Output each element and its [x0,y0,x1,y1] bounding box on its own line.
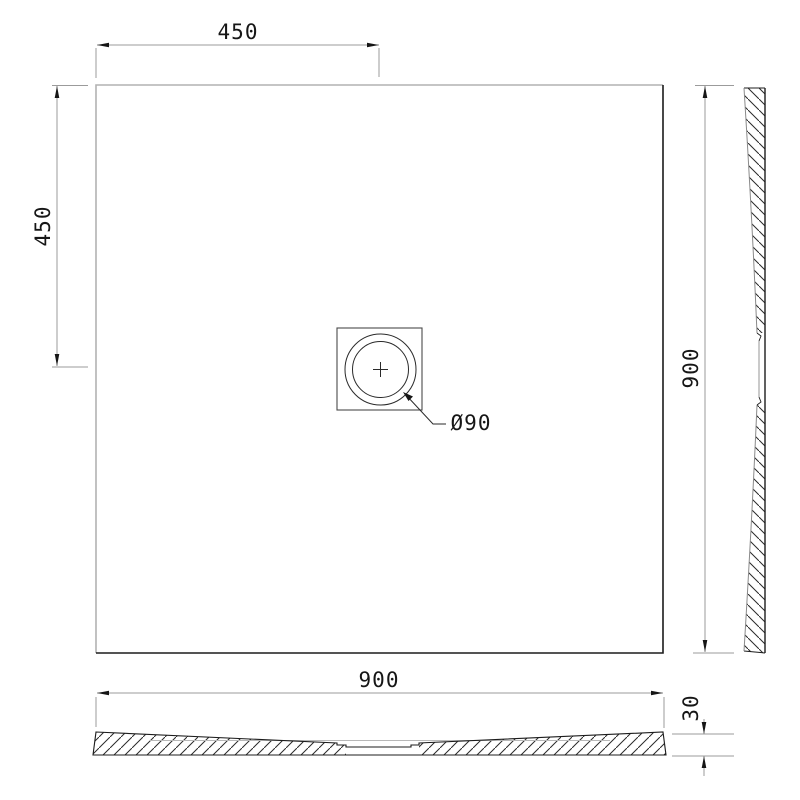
dim-bottom-900 [96,691,664,728]
dim-label-left-450: 450 [31,206,55,247]
arrow-down-icon [703,640,708,652]
technical-drawing-canvas: maxaro® [0,0,800,800]
bottom-section-view [93,732,666,755]
plan-view [96,85,663,653]
side-section-hatch-upper [744,88,765,333]
dim-label-right-900: 900 [679,348,703,389]
dim-label-drain-diameter: Ø90 [451,411,492,435]
arrow-right-icon [367,43,379,48]
arrow-left-icon [97,43,109,48]
bottom-section-hatch-right [419,732,666,755]
extension-lines [96,48,379,78]
arrow-up-icon [702,756,707,768]
bottom-section-hatch-left [93,732,346,755]
dim-left-450 [52,86,88,368]
dim-label-thickness-30: 30 [679,694,703,721]
arrow-down-icon [702,722,707,734]
dim-label-bottom-900: 900 [359,668,400,692]
arrow-down-icon [55,354,60,366]
extension-lines [672,734,734,756]
dim-thickness-30 [672,719,734,776]
side-section-hatch-lower [744,405,765,653]
arrow-right-icon [651,691,663,696]
arrow-up-icon [55,86,60,98]
drawing-linework [0,0,800,800]
arrow-left-icon [97,691,109,696]
extension-lines [96,697,664,728]
dim-top-450 [96,43,379,78]
side-section-view [744,88,765,653]
arrow-up-icon [703,86,708,98]
dim-label-top-450: 450 [218,20,259,44]
